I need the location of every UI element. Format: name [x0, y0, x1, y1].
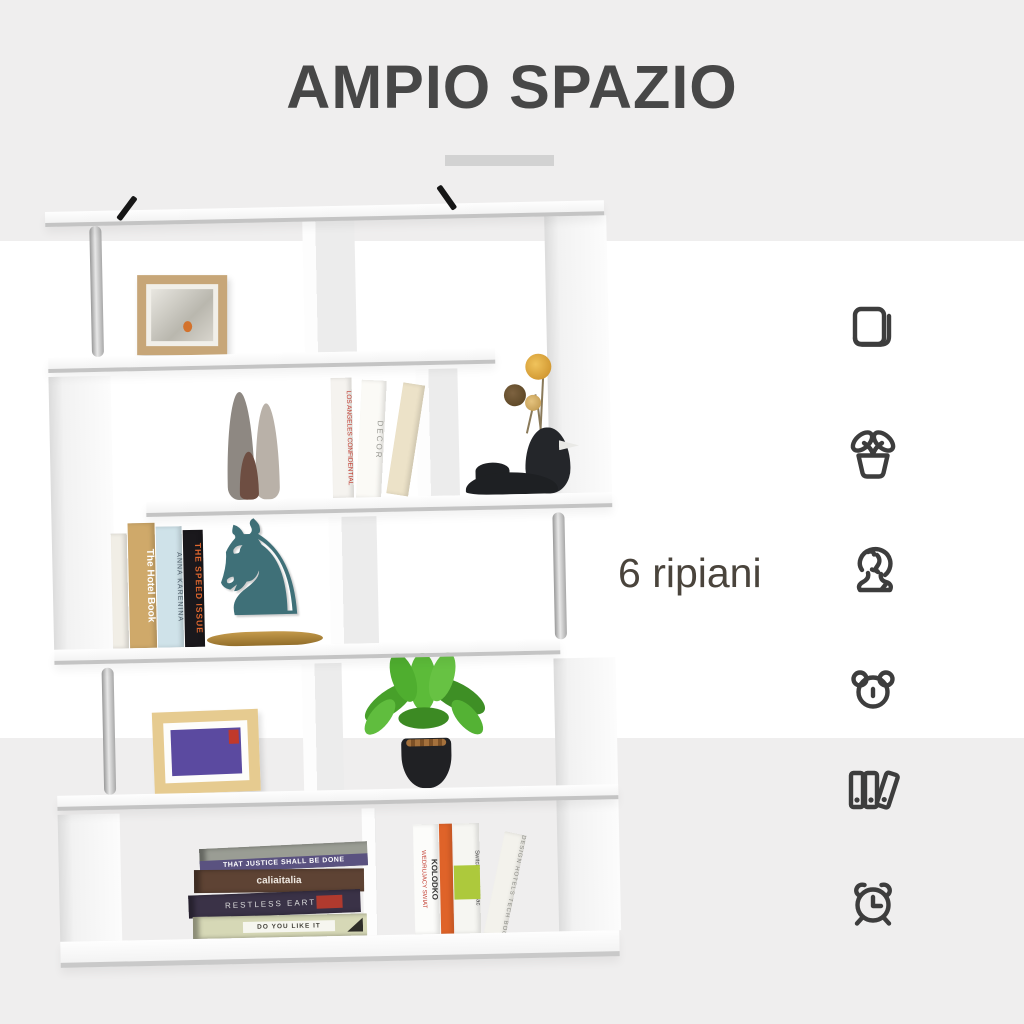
shelf-plank-6	[60, 930, 619, 968]
title-underline-divider	[445, 155, 554, 166]
binders-icon	[841, 761, 905, 825]
leaning-book: DECOR	[356, 380, 387, 499]
book-spine-label: DO YOU LIKE IT	[243, 920, 335, 933]
standing-book: The Hotel Book	[128, 523, 158, 649]
side-panel-left-middle	[48, 376, 116, 650]
spine-corner-detail	[347, 917, 363, 931]
silver-pole-tier1	[89, 226, 104, 357]
alarm-clock-icon	[841, 871, 905, 935]
book-icon	[841, 300, 905, 364]
upright-book: Switching to the Mac	[453, 823, 481, 934]
book-spine-label: DESIGN HOTELS TECH BOOKS	[483, 831, 526, 939]
bookshelf-photo: LOS ANGELES CONFIDENTIAL DECOR The Hotel…	[40, 186, 632, 998]
artwork-detail	[228, 729, 239, 743]
silver-pole-tier3	[552, 512, 567, 639]
standing-book: ANNA KARENINA	[156, 526, 185, 648]
dried-flower-brown	[504, 384, 526, 406]
leaning-book: LOS ANGELES CONFIDENTIAL	[331, 378, 355, 498]
plant-icon	[841, 422, 905, 486]
divider-panel-tier3	[328, 516, 379, 644]
side-panel-left-lower	[58, 814, 123, 942]
upright-book-orange	[439, 824, 454, 934]
plant-leaves	[337, 646, 509, 747]
page-title: AMPIO SPAZIO	[0, 52, 1024, 122]
bear-icon	[841, 656, 905, 720]
book-spine-label: ANNA KARENINA	[156, 526, 185, 648]
callout-ripiani: 6 ripiani	[618, 550, 762, 597]
product-infographic: { "header": { "title": "AMPIO SPAZIO" },…	[0, 0, 1024, 1024]
plant-soil-pebbles	[406, 739, 446, 747]
upright-book: WEDRUJACY SWIAT KOLODKO	[413, 824, 440, 934]
picture-frame-top	[137, 275, 227, 355]
book-spine-label: RESTLESS EARTH	[225, 897, 324, 910]
book-spine-label: LOS ANGELES CONFIDENTIAL	[331, 378, 355, 498]
silver-pole-tier4	[102, 668, 117, 795]
standing-book	[111, 533, 129, 648]
frame-photo	[151, 289, 213, 341]
picture-frame-lower	[152, 709, 261, 795]
spine-lime-detail	[454, 865, 481, 900]
leaning-book: DESIGN HOTELS TECH BOOKS	[483, 831, 526, 939]
statue-icon	[841, 542, 905, 606]
book-spine-label: DECOR	[356, 380, 387, 499]
divider-panel-tier1	[302, 221, 357, 353]
spine-red-detail	[316, 895, 342, 909]
horse-statue: ♞	[192, 504, 325, 637]
book-spine-label: KOLODKO	[425, 824, 440, 934]
book-spine-label: The Hotel Book	[128, 523, 158, 649]
